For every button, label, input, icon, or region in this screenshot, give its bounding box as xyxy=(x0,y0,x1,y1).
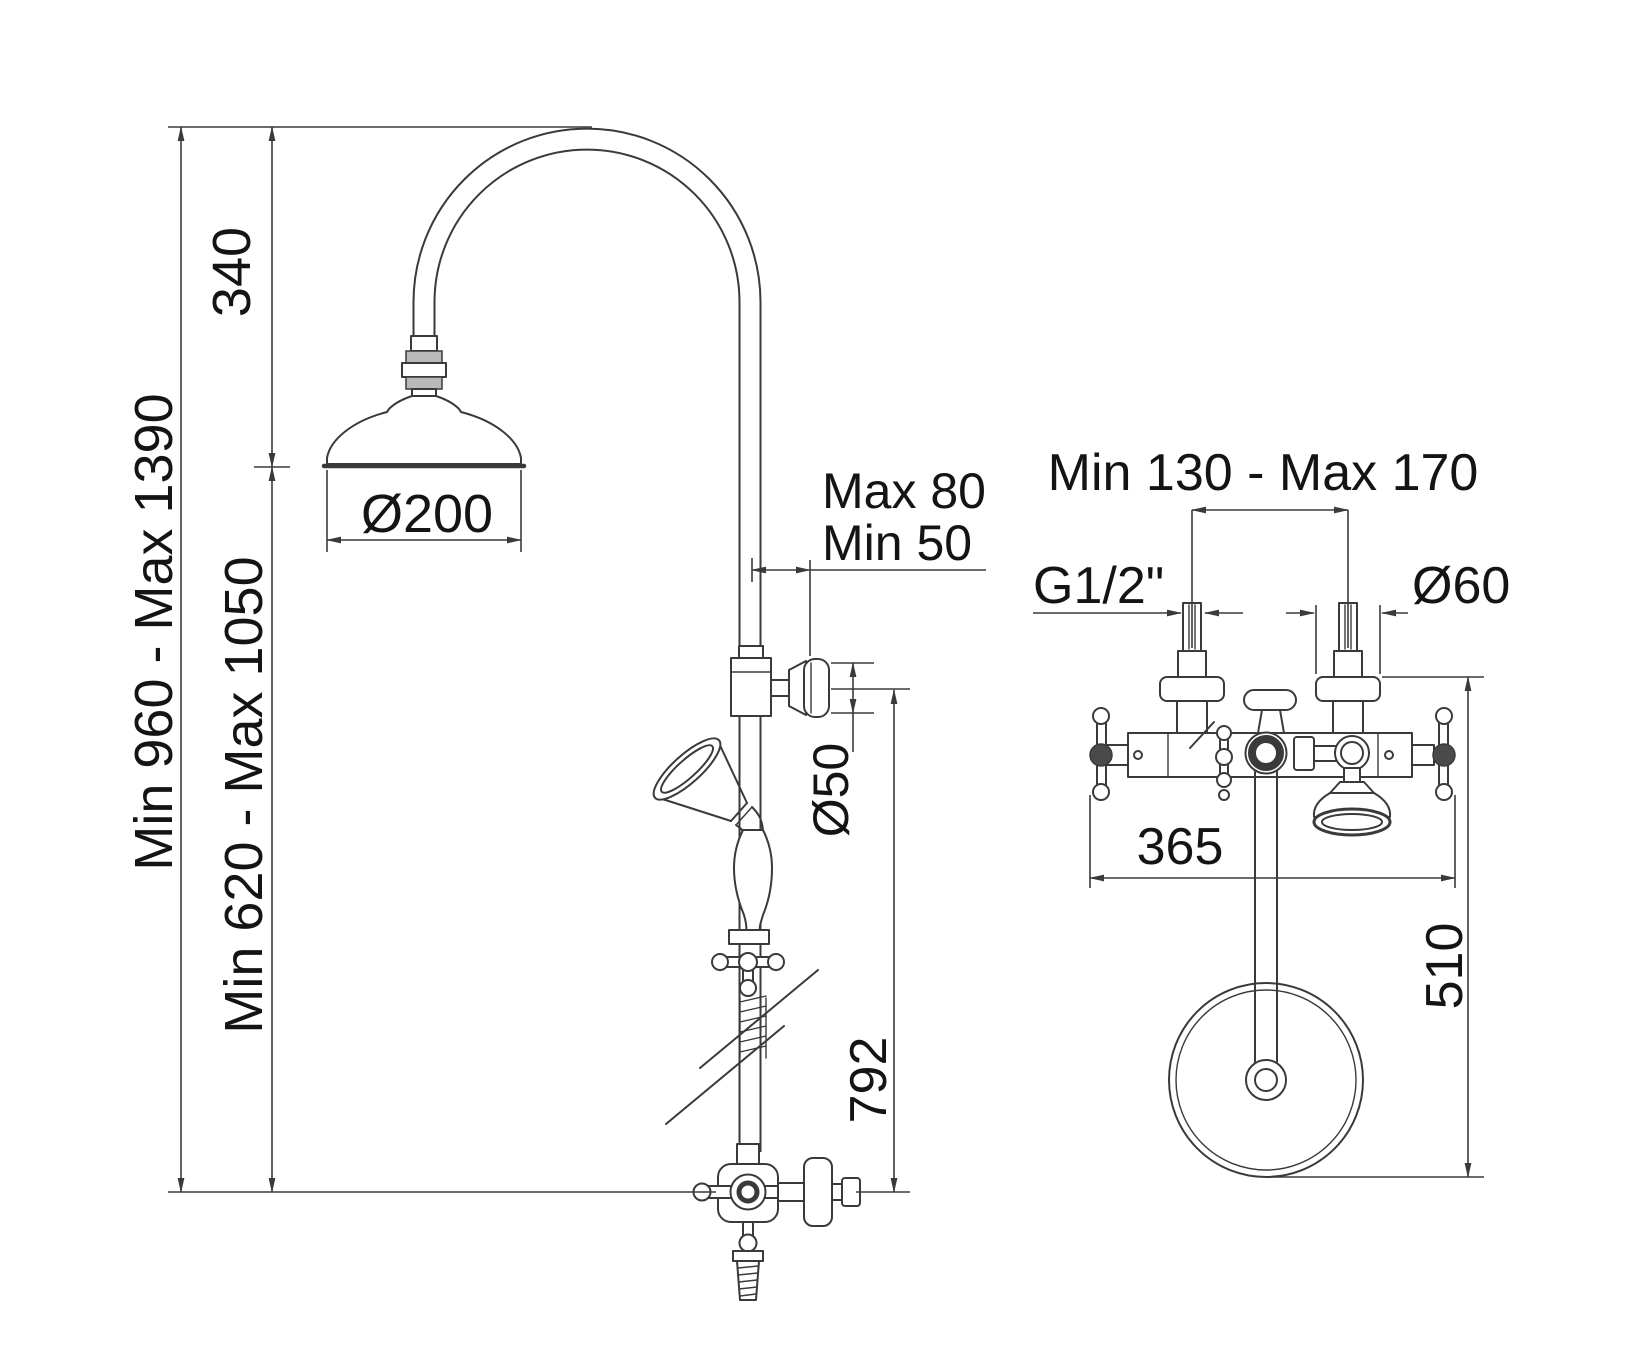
gooseneck-and-riser-pipe xyxy=(424,139,750,1152)
dim-label-body-width: 365 xyxy=(1137,818,1224,876)
dim-label-hand-shower-drop: 510 xyxy=(1416,923,1474,1010)
slide-bracket xyxy=(712,930,784,996)
column-connection-boss xyxy=(1246,733,1287,774)
head-shower-connector xyxy=(402,336,446,397)
dim-label-wall-distance-min: Min 50 xyxy=(822,515,972,571)
front-view xyxy=(1090,603,1455,1177)
dim-label-wall-distance-max: Max 80 xyxy=(822,463,986,519)
dim-label-bracket-flange-diameter: Ø50 xyxy=(803,743,859,838)
dim-inlet-spacing: Min 130 - Max 170 xyxy=(1048,444,1479,648)
dim-label-bracket-to-valve-height: 792 xyxy=(840,1037,898,1124)
dim-label-head-diameter: Ø200 xyxy=(361,484,493,544)
cross-handle-right xyxy=(1412,708,1455,800)
dim-label-arc-height: 340 xyxy=(202,227,262,317)
dim-label-inlet-thread: G1/2" xyxy=(1033,557,1164,615)
wall-bracket xyxy=(731,646,829,717)
head-shower-front xyxy=(1169,983,1363,1177)
dim-body-width: 365 xyxy=(1090,795,1455,888)
shower-column-dimension-drawing: Min 960 - Max 1390 340 Min 620 - Max 105… xyxy=(0,0,1650,1359)
hose-outlet-side xyxy=(778,1158,860,1226)
dim-arc-and-column-height: 340 Min 620 - Max 1050 xyxy=(202,127,290,1192)
top-knob xyxy=(1244,690,1296,733)
cross-handle-left xyxy=(1090,708,1128,800)
dim-label-column-height: Min 620 - Max 1050 xyxy=(214,556,274,1033)
head-shower-side xyxy=(324,396,524,466)
technical-drawing-page: Min 960 - Max 1390 340 Min 620 - Max 105… xyxy=(0,0,1650,1359)
dim-label-overall-height: Min 960 - Max 1390 xyxy=(124,393,184,870)
dim-label-escutcheon-diameter: Ø60 xyxy=(1412,557,1510,615)
dim-inlet-thread: G1/2" xyxy=(1033,557,1243,615)
side-view xyxy=(324,139,860,1300)
dim-overall-height: Min 960 - Max 1390 xyxy=(124,127,184,1192)
connecting-pipe-front xyxy=(1255,772,1277,1062)
dim-wall-distance: Max 80 Min 50 xyxy=(752,463,986,656)
diverter-valve-side xyxy=(694,1144,803,1300)
dim-label-inlet-spacing: Min 130 - Max 170 xyxy=(1048,444,1479,502)
dim-head-diameter: Ø200 xyxy=(327,470,521,552)
dim-escutcheon-diameter: Ø60 xyxy=(1286,557,1510,674)
